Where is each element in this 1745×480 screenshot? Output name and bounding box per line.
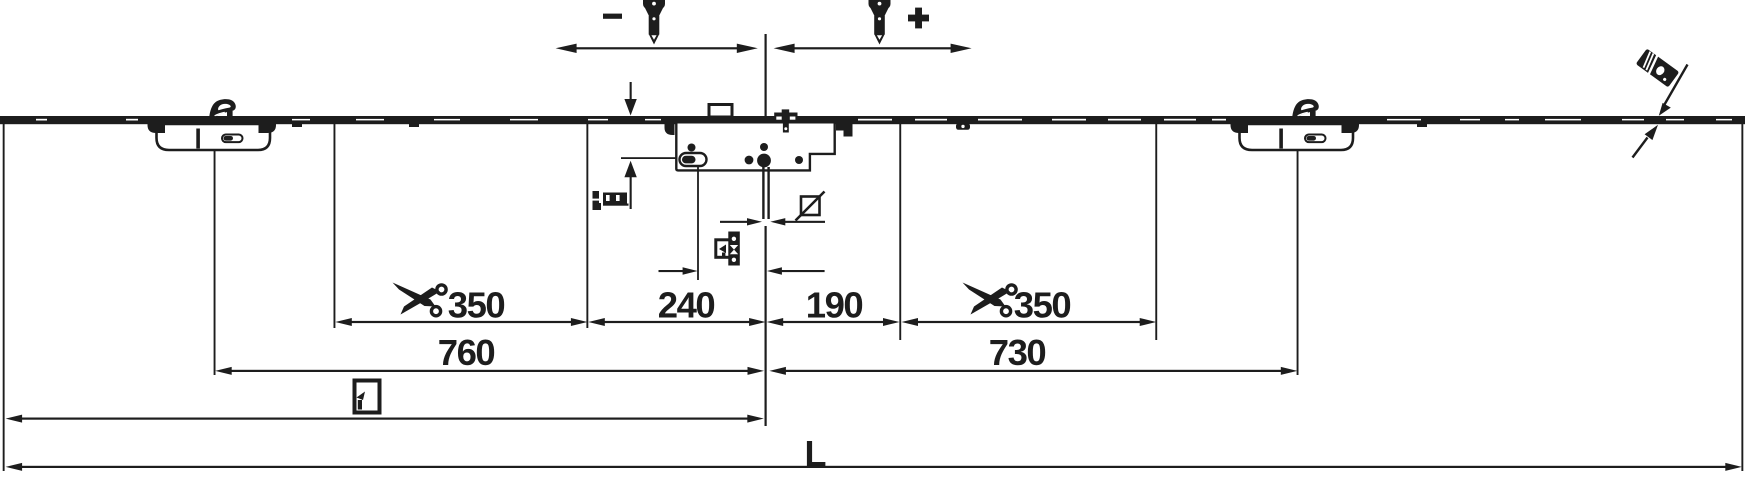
svg-text:240: 240	[658, 285, 715, 326]
svg-text:190: 190	[806, 285, 863, 326]
svg-text:730: 730	[989, 332, 1046, 373]
svg-text:350: 350	[448, 285, 505, 326]
svg-text:350: 350	[1014, 285, 1071, 326]
svg-text:760: 760	[438, 332, 495, 373]
